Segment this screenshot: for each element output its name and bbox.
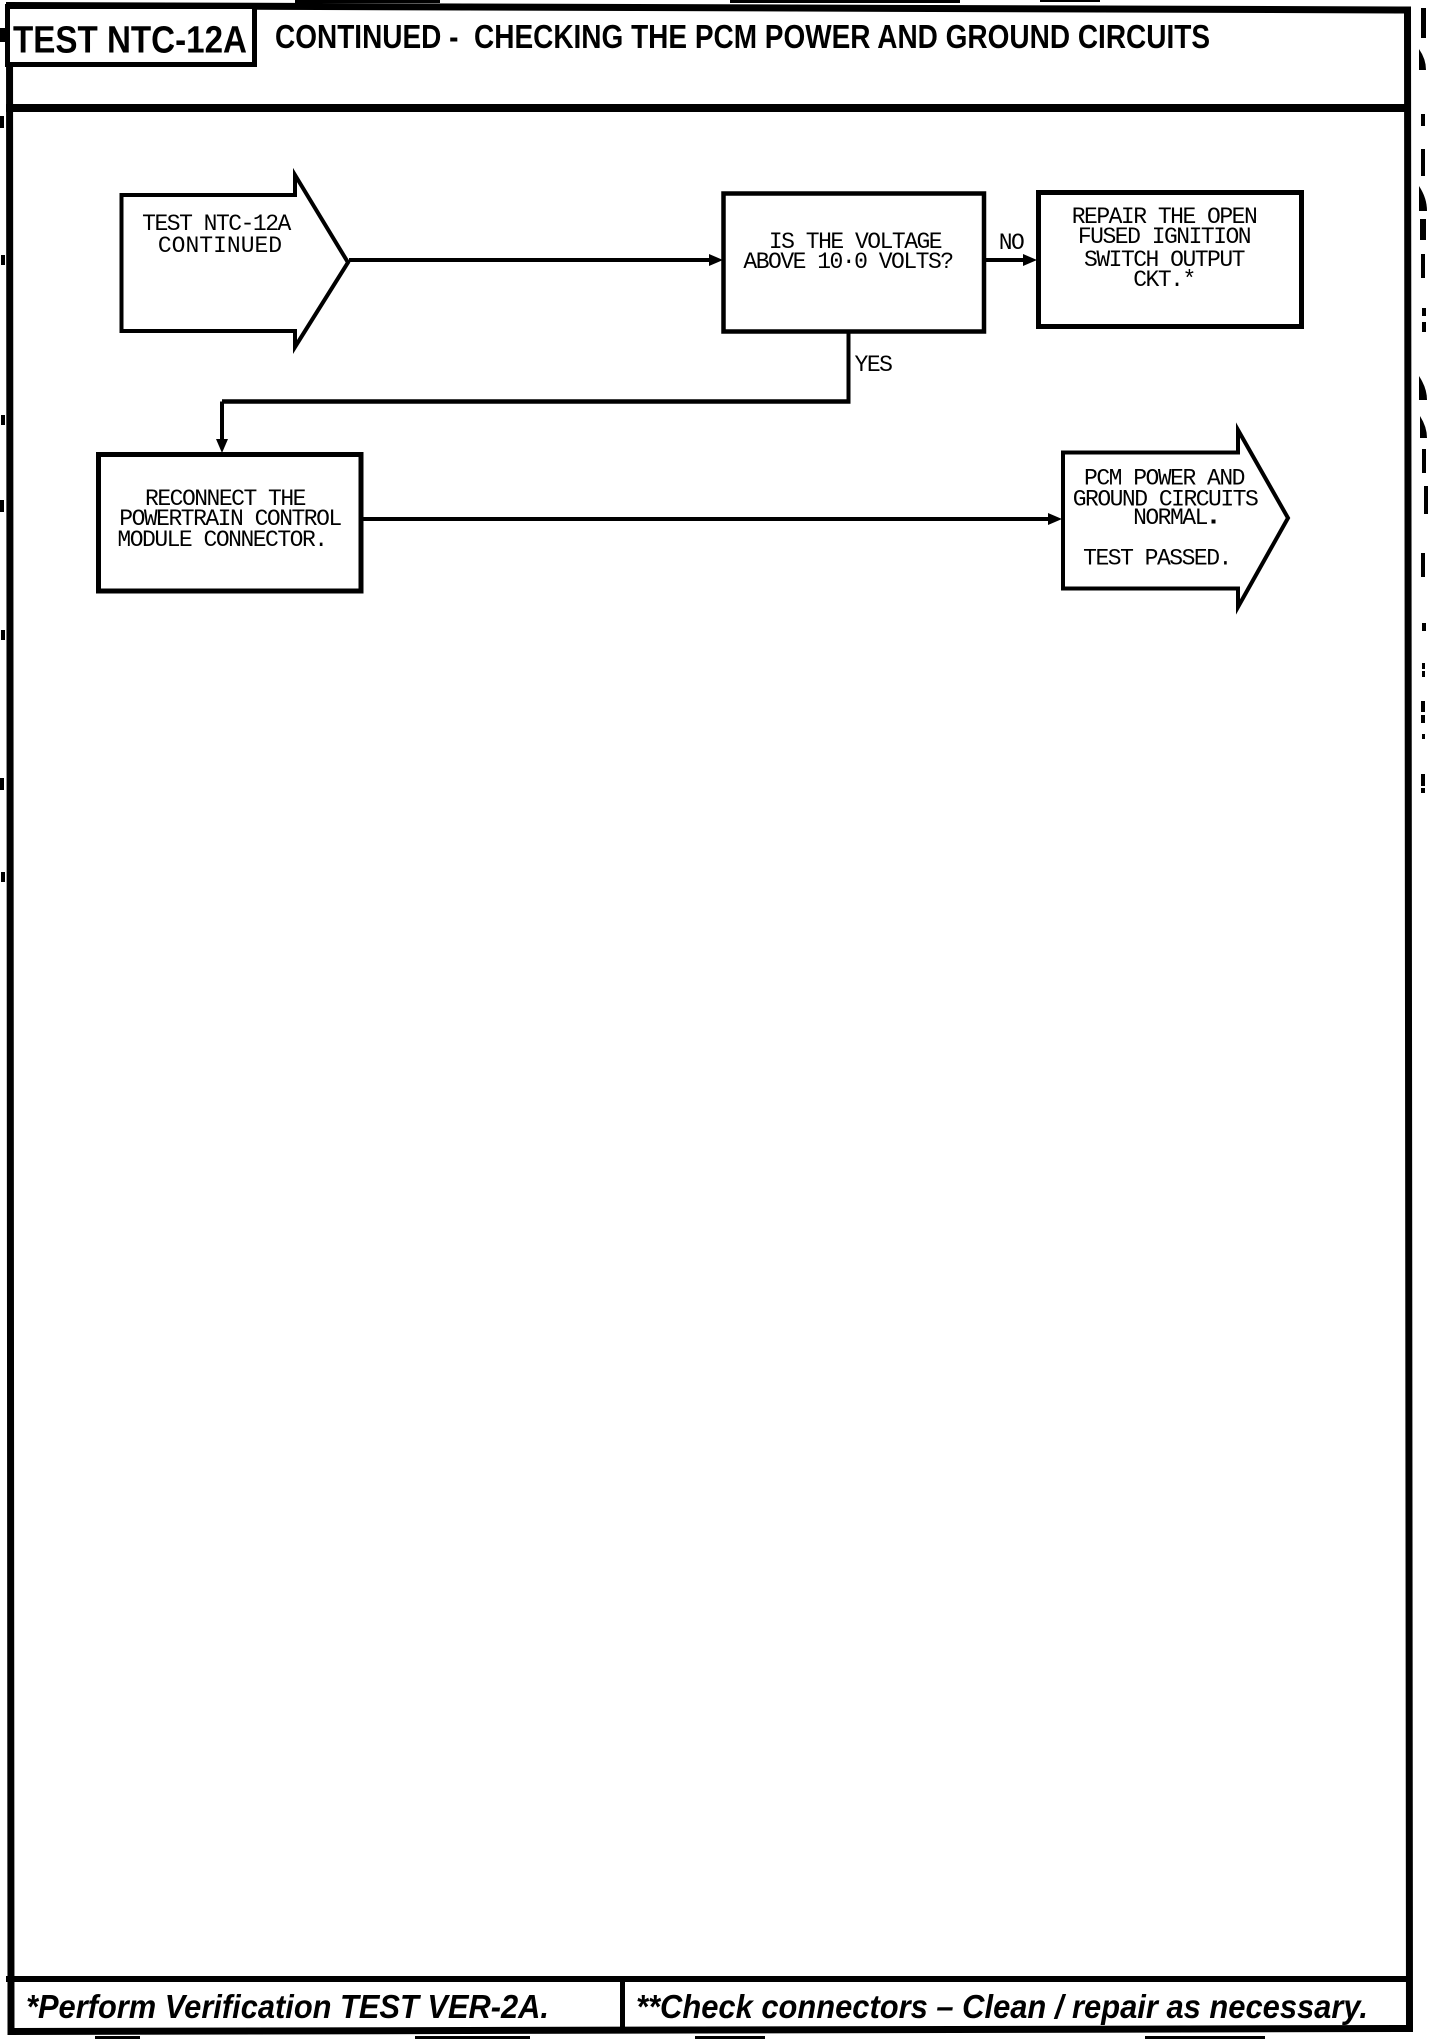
svg-text:TEST NTC-12A: TEST NTC-12A	[13, 20, 247, 62]
svg-text:NO: NO	[999, 230, 1024, 256]
svg-text:MODULE CONNECTOR.: MODULE CONNECTOR.	[117, 527, 326, 553]
svg-text:CONTINUED: CONTINUED	[158, 233, 282, 259]
svg-text:TEST PASSED.: TEST PASSED.	[1083, 546, 1231, 572]
svg-text:*Perform Verification TEST VER: *Perform Verification TEST VER-2A.	[26, 1988, 549, 2025]
svg-text:CONTINUED - CHECKING THE PCM: CONTINUED - CHECKING THE PCM POWER AND G…	[275, 18, 1210, 55]
svg-text:**Check connectors – Clean / r: **Check connectors – Clean / repair as n…	[636, 1988, 1368, 2025]
svg-text:ABOVE 10·0 VOLTS?: ABOVE 10·0 VOLTS?	[743, 249, 953, 275]
svg-text:CKT.*: CKT.*	[1133, 267, 1195, 293]
svg-text:NORMAL: NORMAL	[1133, 505, 1208, 531]
svg-text:YES: YES	[855, 352, 893, 378]
